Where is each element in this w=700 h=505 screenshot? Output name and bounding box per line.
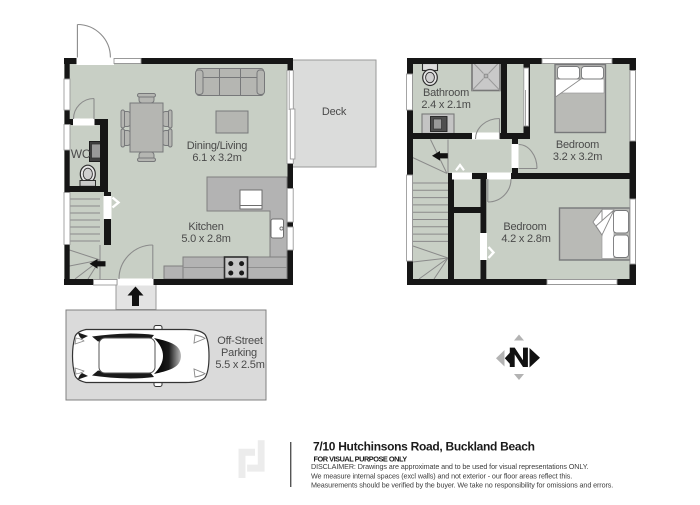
svg-text:Dining/Living: Dining/Living <box>187 140 247 152</box>
svg-text:Deck: Deck <box>322 106 347 118</box>
svg-text:Kitchen: Kitchen <box>188 221 223 233</box>
svg-text:2.4 x 2.1m: 2.4 x 2.1m <box>421 99 470 111</box>
svg-text:We measure internal spaces (ex: We measure internal spaces (excl walls) … <box>311 471 572 480</box>
svg-text:5.5 x 2.5m: 5.5 x 2.5m <box>215 359 264 371</box>
svg-text:7/10 Hutchinsons Road, Bucklan: 7/10 Hutchinsons Road, Buckland Beach <box>313 439 535 453</box>
svg-text:Bedroom: Bedroom <box>503 221 546 233</box>
svg-text:4.2 x 2.8m: 4.2 x 2.8m <box>501 233 550 245</box>
svg-text:WC: WC <box>71 147 91 161</box>
svg-text:Parking: Parking <box>221 347 257 359</box>
svg-text:DISCLAIMER: Drawings are appr: DISCLAIMER: Drawings are approximate and… <box>311 462 588 471</box>
svg-text:Off-Street: Off-Street <box>217 335 263 347</box>
svg-text:6.1 x 3.2m: 6.1 x 3.2m <box>192 152 241 164</box>
svg-text:Bathroom: Bathroom <box>423 87 469 99</box>
svg-text:Bedroom: Bedroom <box>556 139 599 151</box>
svg-text:Measurements should be verifie: Measurements should be verified by the b… <box>311 481 613 490</box>
svg-text:3.2 x 3.2m: 3.2 x 3.2m <box>553 151 602 163</box>
svg-text:5.0 x 2.8m: 5.0 x 2.8m <box>181 233 230 245</box>
